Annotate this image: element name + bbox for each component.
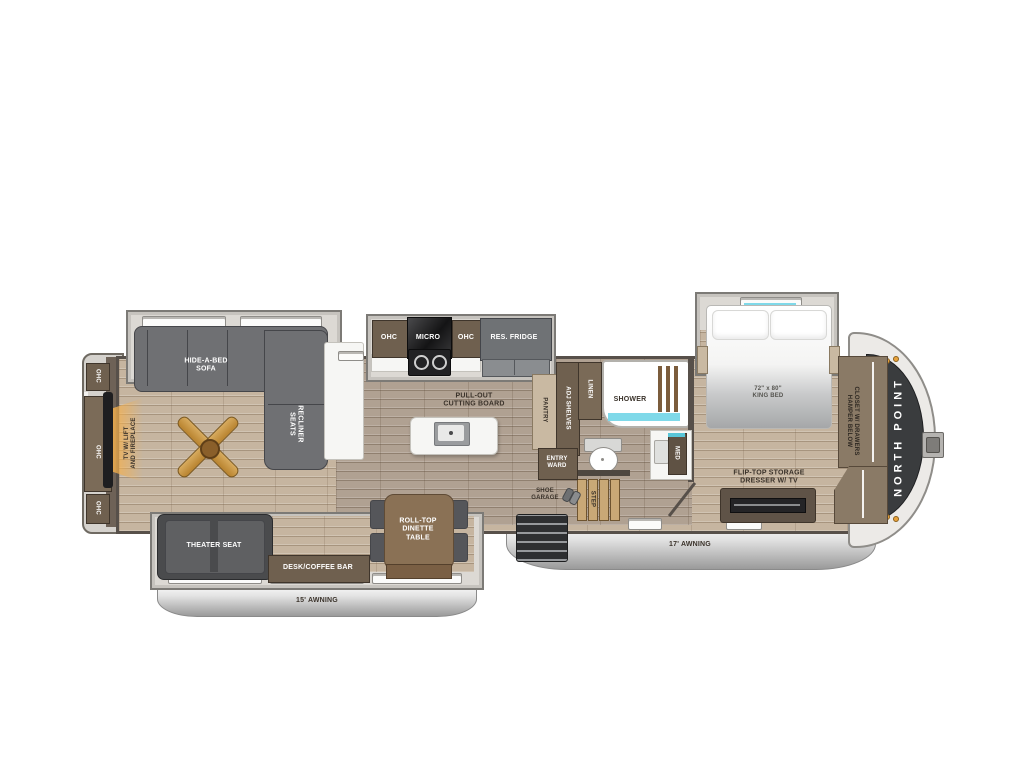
step-label: STEP bbox=[588, 491, 595, 507]
marker-lights-icon bbox=[893, 516, 899, 522]
tv-lift-icon bbox=[103, 392, 113, 488]
entry-steps bbox=[516, 514, 568, 562]
recliner-label: RECLINER SEATS bbox=[287, 405, 304, 442]
clothes-icon bbox=[862, 420, 882, 429]
shoe-garage-label: SHOE GARAGE bbox=[531, 488, 559, 502]
stair-step bbox=[599, 479, 609, 521]
bed-pillow bbox=[712, 310, 769, 340]
linen-label: LINEN bbox=[585, 380, 592, 399]
marker-lights-icon bbox=[893, 356, 899, 362]
bed-pillow bbox=[770, 310, 827, 340]
floorplan-canvas: 15' AWNING NORTH POINT OHC OHC OHC TV W/… bbox=[0, 0, 1024, 768]
nightstand bbox=[697, 346, 708, 374]
clothes-icon bbox=[852, 488, 872, 497]
clothes-icon bbox=[862, 448, 882, 457]
range-burner bbox=[432, 355, 447, 370]
top-wall-window bbox=[338, 351, 364, 361]
med-label: MED bbox=[672, 446, 679, 460]
pullout-cutting-board-label: PULL-OUT CUTTING BOARD bbox=[443, 393, 504, 410]
sofa-seam bbox=[147, 330, 148, 386]
dresser-label: FLIP-TOP STORAGE DRESSER W/ TV bbox=[733, 470, 804, 487]
range-burner bbox=[414, 355, 429, 370]
clothes-icon bbox=[862, 392, 882, 401]
fridge-door-split bbox=[514, 359, 515, 375]
pantry-label: PANTRY bbox=[540, 397, 547, 422]
stair-step bbox=[610, 479, 620, 521]
shower-floor-accent bbox=[608, 413, 680, 421]
toilet-flush-dot bbox=[601, 458, 604, 461]
ohc-rear-mid-label: OHC bbox=[93, 445, 100, 459]
ohc-rear-top-label: OHC bbox=[93, 369, 100, 383]
ohc-kitchen-right-label: OHC bbox=[458, 334, 474, 342]
adj-shelves-label: ADJ SHELVES bbox=[563, 386, 570, 429]
vanity-sink bbox=[654, 440, 669, 464]
clothes-icon bbox=[862, 378, 882, 387]
ohc-kitchen-left-label: OHC bbox=[381, 334, 397, 342]
hitch-pin-inner bbox=[926, 437, 940, 453]
shower-slats bbox=[658, 366, 682, 412]
microwave-label: MICRO bbox=[416, 334, 440, 342]
fridge-label: RES. FRIDGE bbox=[491, 334, 538, 342]
sofa-recliner-section bbox=[264, 330, 328, 470]
bath-half-wall bbox=[576, 470, 630, 476]
closet-label: CLOSET W/ DRAWERS HAMPER BELOW bbox=[845, 386, 859, 455]
clothes-icon bbox=[852, 472, 872, 481]
dinette-bench bbox=[386, 564, 452, 579]
shower-label: SHOWER bbox=[614, 396, 647, 404]
desk-coffee-bar-label: DESK/COFFEE BAR bbox=[283, 564, 353, 572]
med-accent bbox=[668, 433, 685, 437]
clothes-icon bbox=[862, 406, 882, 415]
sink-faucet bbox=[449, 431, 453, 435]
ohc-rear-bottom-label: OHC bbox=[93, 501, 100, 515]
clothes-icon bbox=[862, 434, 882, 443]
stair-step bbox=[577, 479, 587, 521]
theater-seat-label: THEATER SEAT bbox=[186, 542, 241, 550]
clothes-icon bbox=[862, 364, 882, 373]
clothes-icon bbox=[852, 504, 872, 513]
dinette-label: ROLL-TOP DINETTE TABLE bbox=[399, 517, 436, 542]
awning-17ft-label: 17' AWNING bbox=[669, 541, 711, 549]
king-bed-label: 72" x 80" KING BED bbox=[753, 386, 784, 400]
brand-label: NORTH POINT bbox=[892, 377, 905, 497]
dresser-tv-line bbox=[734, 504, 800, 506]
entry-door bbox=[628, 518, 662, 530]
tv-fireplace-label: TV W/ LIFT AND FIREPLACE bbox=[124, 417, 138, 468]
entry-ward-label: ENTRY WARD bbox=[546, 456, 567, 470]
sofa-label: HIDE-A-BED SOFA bbox=[184, 358, 227, 375]
awning-15ft-label: 15' AWNING bbox=[296, 597, 338, 605]
